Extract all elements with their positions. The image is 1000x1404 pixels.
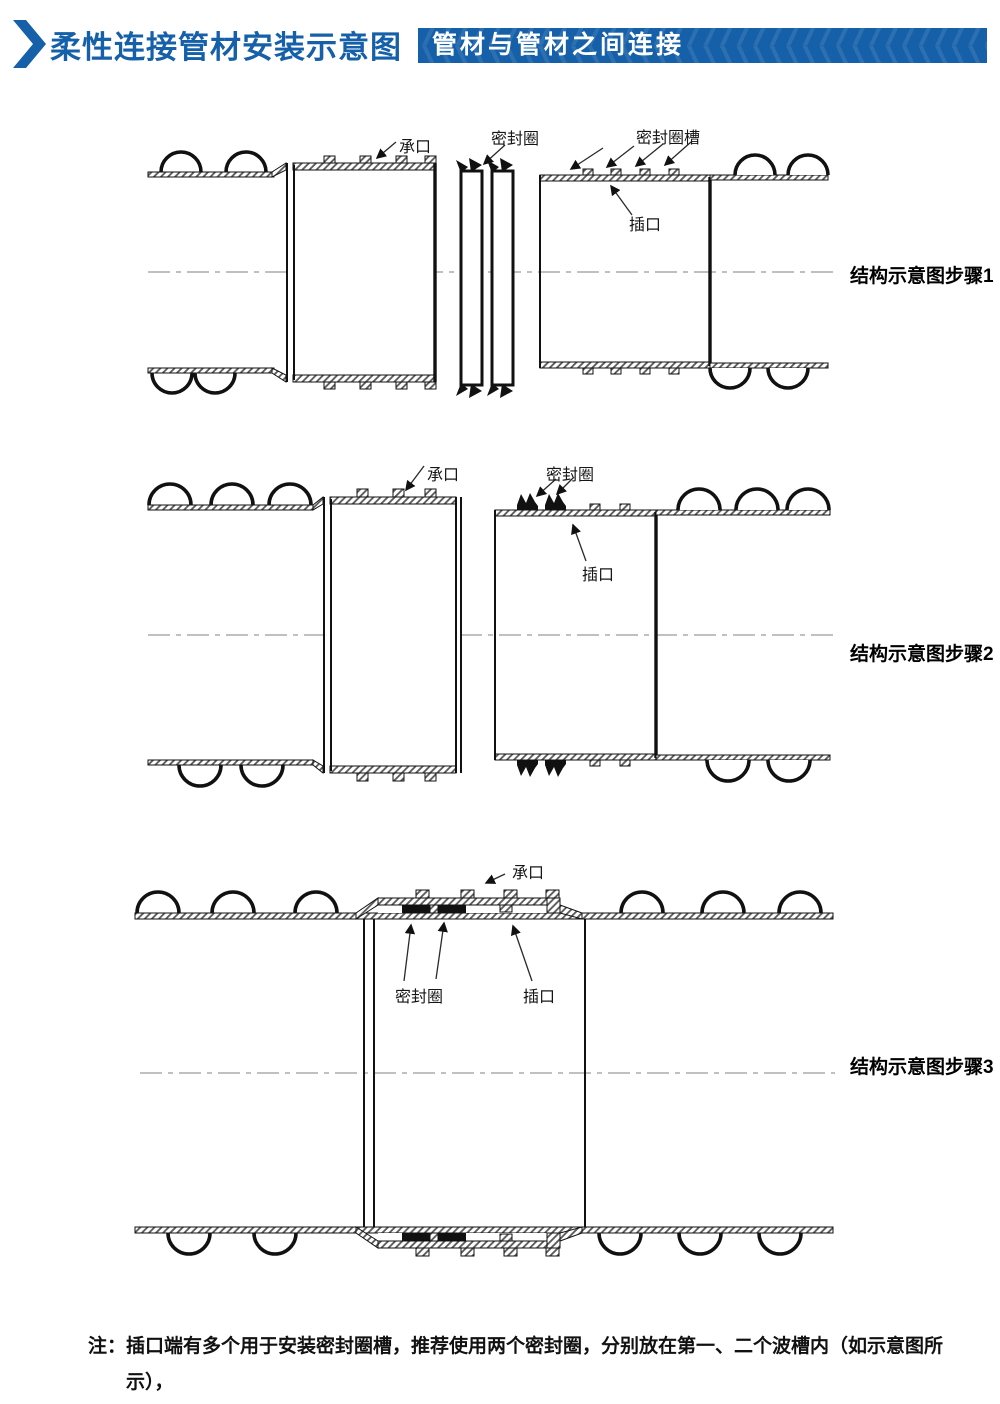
step2-drawing xyxy=(0,450,1000,795)
step3-label-socket: 承口 xyxy=(512,859,544,883)
section-banner: 管材与管材之间连接 xyxy=(418,28,987,63)
step1-label-socket: 承口 xyxy=(399,133,431,157)
step1-label-seal-ring-groove: 密封圈槽 xyxy=(636,124,700,148)
page: 柔性连接管材安装示意图 管材与管材之间连接 xyxy=(0,0,1000,1404)
step3-caption: 结构示意图步骤3 xyxy=(850,1052,994,1079)
step3-label-spigot: 插口 xyxy=(523,983,555,1007)
footnote-line-1: 插口端有多个用于安装密封圈槽，推荐使用两个密封圈，分别放在第一、二个波槽内（如示… xyxy=(126,1329,954,1401)
step1-label-spigot: 插口 xyxy=(629,211,661,235)
footnote-body: 插口端有多个用于安装密封圈槽，推荐使用两个密封圈，分别放在第一、二个波槽内（如示… xyxy=(126,1329,954,1404)
step1-label-seal-ring: 密封圈 xyxy=(491,125,539,149)
step1-caption: 结构示意图步骤1 xyxy=(850,261,994,288)
header-chevron-icon xyxy=(13,20,47,68)
footnote: 注： 插口端有多个用于安装密封圈槽，推荐使用两个密封圈，分别放在第一、二个波槽内… xyxy=(88,1329,954,1404)
page-title: 柔性连接管材安装示意图 xyxy=(50,22,402,67)
footnote-prefix: 注： xyxy=(88,1329,126,1404)
step2-label-spigot: 插口 xyxy=(582,561,614,585)
step3-label-seal-ring: 密封圈 xyxy=(395,983,443,1007)
step2-label-seal-ring: 密封圈 xyxy=(546,461,594,485)
step2-label-socket: 承口 xyxy=(427,461,459,485)
step2-caption: 结构示意图步骤2 xyxy=(850,639,994,666)
section-banner-text: 管材与管材之间连接 xyxy=(418,28,987,63)
